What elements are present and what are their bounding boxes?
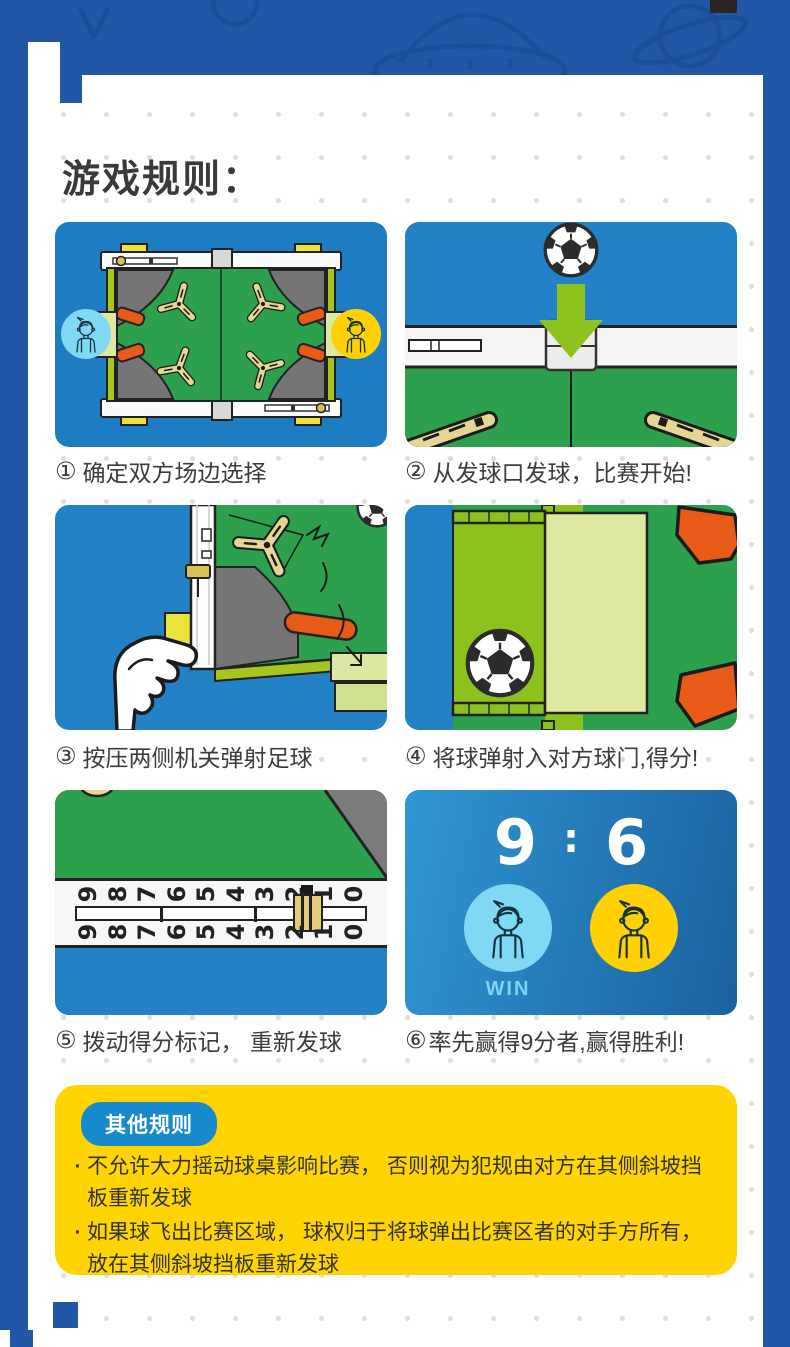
panel-press-lever: [55, 505, 387, 730]
panel-serve: [405, 222, 737, 447]
step-caption-5: ⑤ 拨动得分标记， 重新发球: [55, 1024, 400, 1056]
player-left-avatar: [61, 309, 111, 359]
step-label: 率先赢得9分者,赢得胜利!: [429, 1023, 685, 1057]
bullet-dot: ·: [69, 1217, 87, 1281]
serve-illustration: [405, 222, 737, 447]
winner-avatar: [464, 884, 552, 972]
step-number: ④: [405, 742, 427, 771]
rule-text: 不允许大力摇动球桌影响比赛， 否则视为犯规由对方在其侧斜坡挡板重新发球: [87, 1151, 717, 1215]
step-label: 确定双方场边选择: [83, 454, 267, 488]
table-overview-illustration: [55, 222, 387, 447]
score-numbers-bottom: 9 8 7 6 5 4 3 2 1 0: [75, 920, 367, 944]
score-separator: :: [563, 816, 579, 862]
decor-dark-square: [710, 0, 737, 13]
press-lever-illustration: [55, 505, 387, 730]
field-strip: [55, 790, 387, 878]
decor-blue-square-top: [60, 75, 82, 103]
decor-blue-block-bottom: [10, 1330, 33, 1347]
left-score: 9: [494, 806, 537, 879]
step-label: 拨动得分标记， 重新发球: [83, 1023, 342, 1057]
panel-score-rail: 9 8 7 6 5 4 3 2 1 0 9 8 7 6 5 4: [55, 790, 387, 1015]
step-label: 从发球口发球，比赛开始!: [433, 454, 692, 488]
frame-top-band: [0, 0, 790, 75]
rule-item: · 不允许大力摇动球桌影响比赛， 否则视为犯规由对方在其侧斜坡挡板重新发球: [69, 1151, 717, 1215]
other-rules-box: 其他规则 · 不允许大力摇动球桌影响比赛， 否则视为犯规由对方在其侧斜坡挡板重新…: [55, 1085, 737, 1275]
panel-goal: [405, 505, 737, 730]
player-right-avatar: [331, 309, 381, 359]
step-number: ⑥: [405, 1026, 427, 1055]
page: 游戏规则：: [0, 0, 790, 1347]
score-number: 9: [76, 881, 100, 907]
step-label: 按压两侧机关弹射足球: [83, 739, 313, 773]
panel-table-overview: [55, 222, 387, 447]
ramp-board: [545, 513, 647, 713]
step-caption-6: ⑥ 率先赢得9分者,赢得胜利!: [405, 1024, 750, 1056]
loser-avatar: [590, 884, 678, 972]
right-score: 6: [605, 806, 648, 879]
frame-right-strip: [763, 75, 790, 1347]
score-rail: 9 8 7 6 5 4 3 2 1 0 9 8 7 6 5 4: [55, 878, 387, 948]
frame-doodles: [0, 0, 790, 75]
page-title: 游戏规则：: [62, 148, 262, 203]
decor-blue-square-bottom: [53, 1302, 78, 1328]
step-caption-3: ③ 按压两侧机关弹射足球: [55, 740, 400, 772]
step-number: ②: [405, 457, 427, 486]
rule-item: · 如果球飞出比赛区域， 球权归于将球弹出比赛区者的对手方所有，放在其侧斜坡挡板…: [69, 1217, 717, 1281]
hand-press-icon: [115, 637, 196, 730]
step-caption-1: ① 确定双方场边选择: [55, 455, 400, 487]
step-number: ⑤: [55, 1026, 77, 1055]
score-display: 9 : 6: [405, 806, 737, 879]
boy-avatar-icon: [609, 897, 659, 959]
step-number: ①: [55, 457, 77, 486]
step-caption-2: ② 从发球口发球，比赛开始!: [405, 455, 750, 487]
step-label: 将球弹射入对方球门,得分!: [433, 739, 699, 773]
other-rules-list: · 不允许大力摇动球桌影响比赛， 否则视为犯规由对方在其侧斜坡挡板重新发球 · …: [69, 1151, 717, 1283]
decor-white-tab: [28, 42, 60, 76]
score-numbers-top: 9 8 7 6 5 4 3 2 1 0: [75, 882, 367, 906]
other-rules-badge: 其他规则: [81, 1102, 217, 1146]
boy-avatar-icon: [483, 897, 533, 959]
bullet-dot: ·: [69, 1151, 87, 1215]
flippers: [677, 507, 737, 726]
score-marker-cap: [301, 885, 313, 894]
step-number: ③: [55, 742, 77, 771]
soccer-ball-icon: [542, 222, 601, 276]
frame-left-strip: [0, 75, 28, 1330]
table-side-strip: [55, 948, 387, 1015]
goal-illustration: [405, 505, 737, 730]
panel-scoreboard: 9 : 6 WIN: [405, 790, 737, 1015]
win-label: WIN: [464, 978, 552, 1001]
rule-text: 如果球飞出比赛区域， 球权归于将球弹出比赛区者的对手方所有，放在其侧斜坡挡板重新…: [87, 1217, 717, 1281]
step-caption-4: ④ 将球弹射入对方球门,得分!: [405, 740, 750, 772]
